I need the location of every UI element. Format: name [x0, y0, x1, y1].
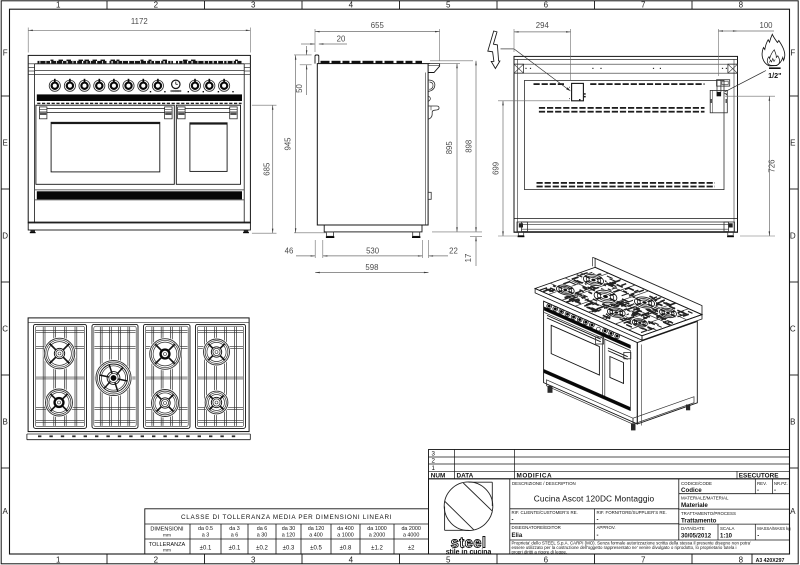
svg-text:F: F	[3, 48, 8, 57]
svg-text:-: -	[757, 488, 759, 494]
svg-text:da 120: da 120	[308, 526, 325, 532]
svg-text:A: A	[790, 507, 796, 516]
svg-text:726: 726	[768, 160, 777, 173]
svg-text:±2: ±2	[408, 546, 415, 552]
svg-text:4: 4	[349, 1, 354, 10]
svg-text:mm: mm	[163, 534, 171, 539]
svg-text:20: 20	[337, 35, 346, 44]
svg-text:5: 5	[446, 555, 451, 564]
svg-text:a 120: a 120	[282, 533, 296, 539]
svg-text:6: 6	[544, 1, 549, 10]
svg-text:8: 8	[739, 1, 744, 10]
svg-text:6: 6	[544, 555, 549, 564]
svg-text:50: 50	[295, 84, 304, 93]
svg-text:30/05/2012: 30/05/2012	[681, 534, 712, 540]
svg-text:da 3: da 3	[229, 526, 240, 532]
svg-text:Materiale: Materiale	[681, 502, 708, 509]
svg-text:3: 3	[251, 1, 256, 10]
svg-text:±0.8: ±0.8	[340, 546, 352, 552]
svg-text:699: 699	[491, 162, 500, 175]
svg-text:B: B	[3, 417, 8, 426]
svg-text:294: 294	[536, 21, 550, 30]
svg-text:-: -	[597, 518, 599, 524]
svg-text:-: -	[757, 534, 759, 540]
svg-text:±1.2: ±1.2	[371, 546, 383, 552]
svg-text:4: 4	[349, 555, 354, 564]
svg-text:A: A	[3, 507, 9, 516]
svg-text:stile in cucina: stile in cucina	[446, 549, 492, 556]
svg-text:DIMENSIONI: DIMENSIONI	[150, 527, 184, 533]
svg-text:a 1000: a 1000	[337, 533, 354, 539]
svg-text:a 4000: a 4000	[403, 533, 420, 539]
svg-text:a 2000: a 2000	[369, 533, 386, 539]
svg-text:E: E	[790, 138, 795, 147]
svg-text:1172: 1172	[131, 17, 148, 26]
svg-text:655: 655	[371, 21, 385, 30]
svg-text:A3 420X297: A3 420X297	[756, 558, 785, 564]
svg-text:CODICE/CODE: CODICE/CODE	[681, 481, 712, 486]
svg-text:±0.2: ±0.2	[256, 546, 268, 552]
svg-text:a 30: a 30	[257, 533, 268, 539]
svg-text:a 6: a 6	[231, 533, 239, 539]
svg-text:3: 3	[251, 555, 256, 564]
svg-text:MASSA/MASS kg: MASSA/MASS kg	[757, 526, 791, 531]
svg-text:-: -	[597, 533, 599, 539]
svg-text:7: 7	[641, 1, 646, 10]
svg-text:APPROV.: APPROV.	[597, 525, 616, 530]
svg-text:C: C	[790, 324, 796, 333]
svg-text:RIF. CLIENTE/CUSTOMER’S RE.: RIF. CLIENTE/CUSTOMER’S RE.	[512, 510, 578, 515]
svg-text:DESCRIZIONE / DESCRIPTION: DESCRIZIONE / DESCRIPTION	[512, 481, 576, 486]
svg-text:Trattamento: Trattamento	[681, 517, 717, 524]
svg-text:530: 530	[366, 247, 380, 256]
svg-text:898: 898	[464, 140, 473, 153]
svg-text:da 30: da 30	[282, 526, 296, 532]
svg-text:-: -	[774, 488, 776, 494]
svg-text:da 2000: da 2000	[401, 526, 421, 532]
svg-text:REV.: REV.	[757, 481, 767, 486]
svg-text:B: B	[790, 417, 795, 426]
svg-text:NR.PZ.: NR.PZ.	[774, 481, 788, 486]
svg-text:C: C	[2, 324, 8, 333]
svg-text:TOLLERANZA: TOLLERANZA	[149, 542, 186, 548]
svg-text:Codice: Codice	[681, 487, 702, 494]
svg-text:-: -	[512, 518, 514, 524]
svg-text:da 0.5: da 0.5	[198, 526, 213, 532]
svg-text:8: 8	[739, 555, 744, 564]
svg-text:1: 1	[56, 555, 61, 564]
svg-text:DISEGNATORE/EDITOR: DISEGNATORE/EDITOR	[512, 525, 561, 530]
svg-text:1: 1	[56, 1, 61, 10]
svg-text:±0.1: ±0.1	[200, 546, 212, 552]
svg-text:7: 7	[641, 555, 646, 564]
svg-text:Cucina Ascot 120DC Montaggio: Cucina Ascot 120DC Montaggio	[534, 493, 655, 503]
svg-text:2: 2	[432, 458, 436, 465]
svg-text:D: D	[2, 231, 8, 240]
svg-text:±0.1: ±0.1	[229, 546, 241, 552]
svg-text:100: 100	[759, 21, 773, 30]
svg-text:5: 5	[446, 1, 451, 10]
svg-text:da 6: da 6	[257, 526, 268, 532]
svg-text:da 400: da 400	[337, 526, 354, 532]
svg-text:SCALA: SCALA	[720, 526, 734, 531]
svg-text:685: 685	[263, 162, 272, 176]
svg-text:da 1000: da 1000	[367, 526, 387, 532]
svg-text:CLASSE DI TOLLERANZA MEDIA PER: CLASSE DI TOLLERANZA MEDIA PER DIMENSION…	[181, 514, 392, 521]
svg-text:1: 1	[432, 465, 436, 472]
svg-text:±0.5: ±0.5	[310, 546, 322, 552]
svg-text:Elia: Elia	[512, 533, 523, 539]
svg-text:D: D	[790, 231, 796, 240]
svg-text:±0.3: ±0.3	[283, 546, 295, 552]
svg-text:mm: mm	[163, 549, 171, 554]
svg-text:RIF. FORNITORE/SUPPLIER’S RE.: RIF. FORNITORE/SUPPLIER’S RE.	[597, 510, 667, 515]
svg-text:3: 3	[432, 451, 436, 458]
svg-text:F: F	[790, 48, 795, 57]
svg-text:1/2": 1/2"	[768, 71, 781, 80]
svg-text:22: 22	[449, 247, 458, 256]
svg-text:46: 46	[285, 247, 294, 256]
svg-text:propri diritti a rigore di leg: propri diritti a rigore di legge.	[512, 549, 568, 554]
svg-text:895: 895	[445, 141, 454, 155]
svg-text:1:10: 1:10	[720, 534, 733, 540]
svg-text:2: 2	[154, 1, 159, 10]
svg-text:MATERIALE/MATERIAL: MATERIALE/MATERIAL	[681, 496, 729, 501]
svg-text:945: 945	[284, 137, 293, 151]
svg-text:a 3: a 3	[202, 533, 210, 539]
svg-text:2: 2	[154, 555, 159, 564]
svg-text:DATA/DATE: DATA/DATE	[681, 526, 705, 531]
svg-text:TRATTAMENTO/PROCESS: TRATTAMENTO/PROCESS	[681, 511, 736, 516]
svg-text:a 400: a 400	[309, 533, 323, 539]
svg-text:17: 17	[464, 254, 473, 263]
svg-text:598: 598	[365, 263, 378, 272]
svg-text:E: E	[3, 138, 8, 147]
